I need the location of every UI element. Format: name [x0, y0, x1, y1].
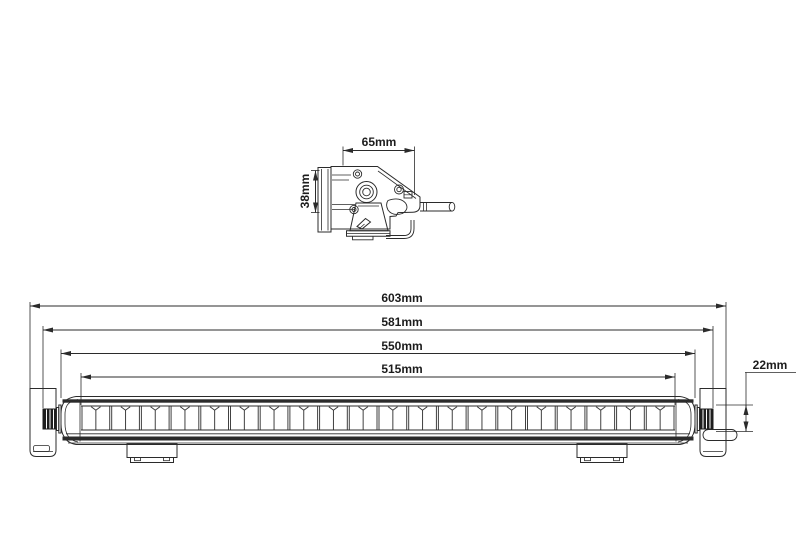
- end-height-dimension-label-22: 22mm: [753, 359, 788, 371]
- dimension-side-width: [343, 147, 415, 196]
- length-dimension-label-515: 515mm: [381, 363, 422, 375]
- dimension-581mm: [43, 326, 713, 408]
- dimension-22mm: [716, 373, 796, 432]
- brand-chevron-icon: [357, 219, 371, 230]
- bar-top-strip: [63, 399, 694, 402]
- bar-bottom-strip: [63, 437, 694, 441]
- length-dimension-label-550: 550mm: [381, 340, 422, 352]
- side-cable: [420, 202, 455, 211]
- right-fixing-knob: [695, 405, 713, 433]
- dimension-603mm: [30, 302, 726, 388]
- length-dimension-label-581: 581mm: [381, 316, 422, 328]
- side-lens: [318, 168, 331, 233]
- side-mounting-bracket: [347, 203, 391, 240]
- bar-body: [61, 397, 695, 445]
- side-pivot-bolt: [356, 182, 377, 203]
- left-fixing-knob: [43, 405, 61, 433]
- side-width-dimension-label: 65mm: [362, 136, 397, 148]
- mounting-foot-right: [577, 444, 627, 463]
- led-lens-segments: [81, 406, 675, 430]
- side-height-dimension-label: 38mm: [299, 174, 311, 209]
- mounting-foot-left: [127, 444, 177, 463]
- light-bar-dimension-drawing: [0, 0, 800, 533]
- side-cable-grommet: [387, 192, 412, 215]
- dimension-550mm: [61, 350, 695, 399]
- length-dimension-label-603: 603mm: [381, 292, 422, 304]
- side-view-drawing: [311, 147, 455, 240]
- technical-drawing-canvas: 65mm 38mm 603mm 581mm 550mm 515mm 22mm: [0, 0, 800, 533]
